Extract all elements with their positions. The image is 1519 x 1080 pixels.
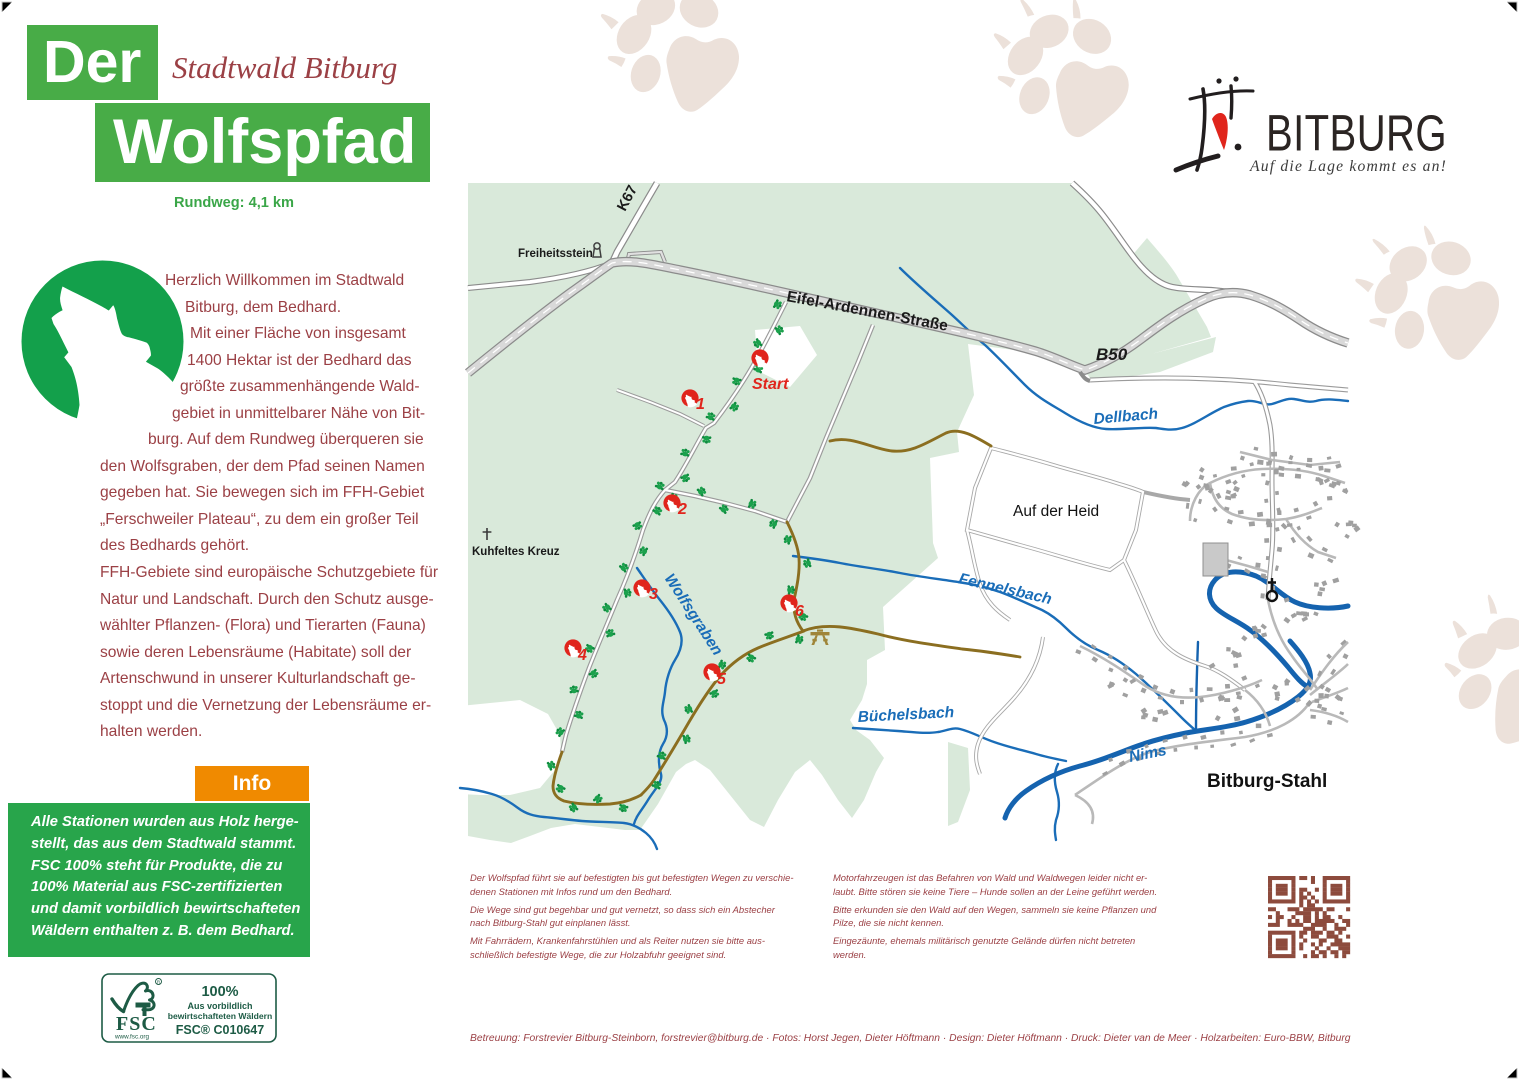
svg-text:Auf der Heid: Auf der Heid bbox=[1013, 503, 1099, 520]
svg-text:Büchelsbach: Büchelsbach bbox=[857, 704, 954, 726]
svg-text:B50: B50 bbox=[1096, 345, 1128, 364]
svg-text:www.fsc.org: www.fsc.org bbox=[114, 1034, 149, 1041]
svg-text:Fennelsbach: Fennelsbach bbox=[957, 570, 1053, 608]
svg-text:Aus vorbildlich: Aus vorbildlich bbox=[187, 1001, 252, 1011]
svg-text:FSC: FSC bbox=[116, 1013, 157, 1035]
svg-text:100%: 100% bbox=[201, 984, 238, 1000]
svg-text:Dellbach: Dellbach bbox=[1093, 405, 1159, 428]
svg-text:bewirtschafteten Wäldern: bewirtschafteten Wäldern bbox=[168, 1011, 273, 1021]
svg-text:3: 3 bbox=[649, 586, 658, 603]
svg-text:1: 1 bbox=[696, 396, 705, 413]
svg-text:FSC® C010647: FSC® C010647 bbox=[176, 1023, 264, 1037]
svg-text:4: 4 bbox=[577, 647, 587, 664]
svg-text:5: 5 bbox=[717, 671, 727, 688]
svg-text:2: 2 bbox=[677, 501, 687, 518]
svg-text:Freiheitsstein: Freiheitsstein bbox=[518, 248, 593, 260]
svg-text:Bitburg-Stahl: Bitburg-Stahl bbox=[1207, 771, 1327, 792]
svg-text:6: 6 bbox=[795, 603, 804, 620]
svg-text:Start: Start bbox=[752, 376, 789, 393]
svg-text:Kuhfeltes Kreuz: Kuhfeltes Kreuz bbox=[472, 546, 560, 558]
